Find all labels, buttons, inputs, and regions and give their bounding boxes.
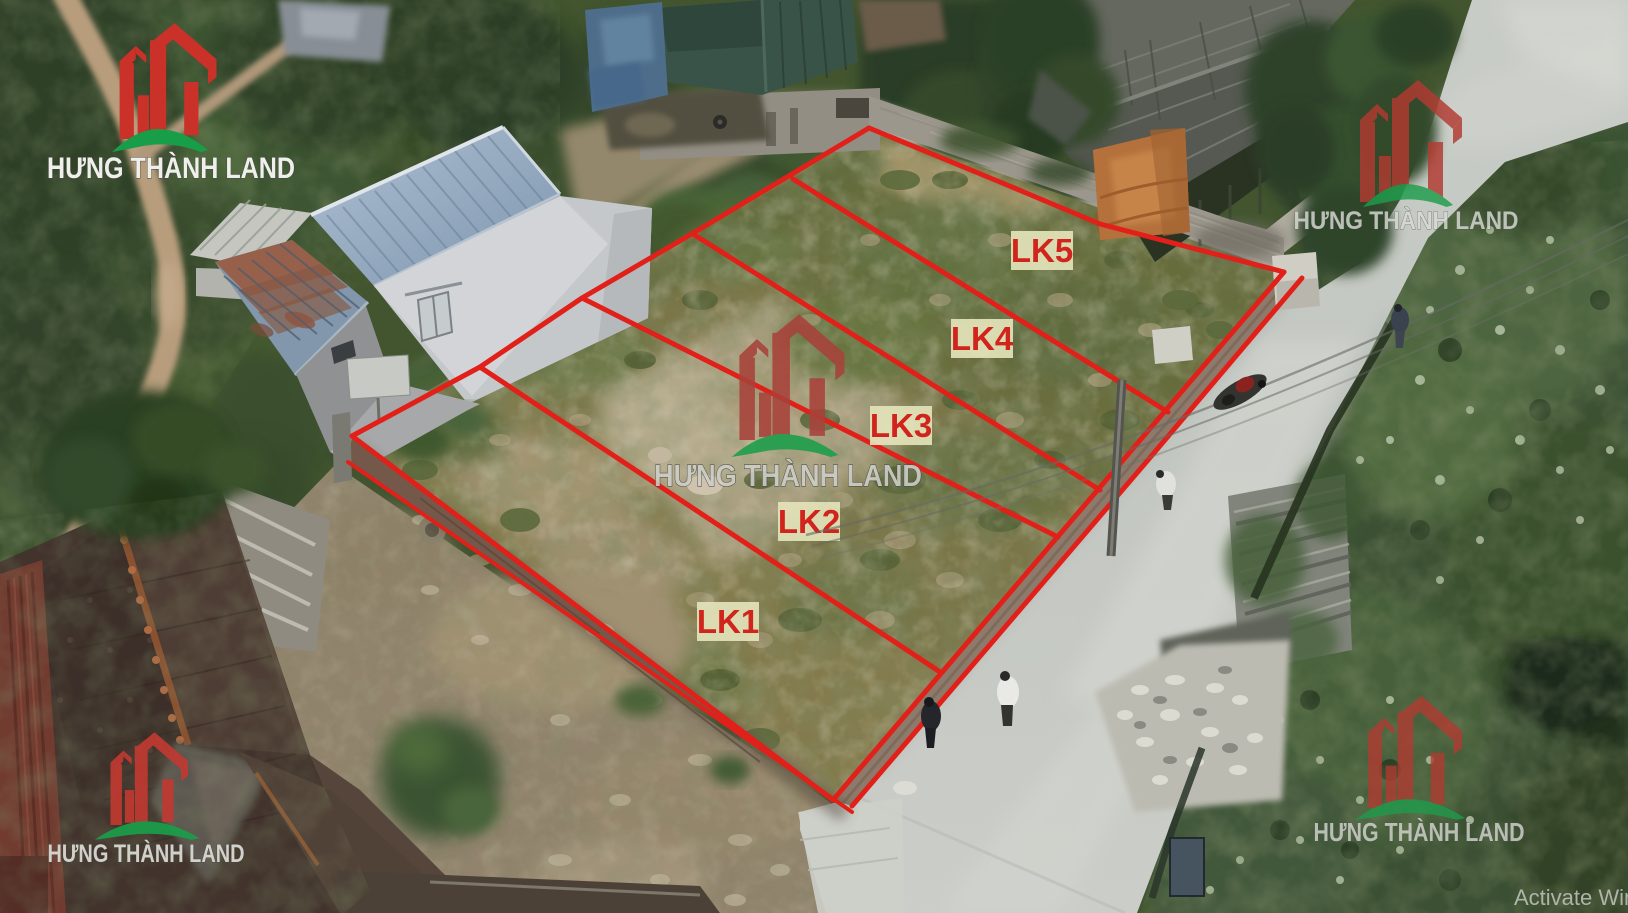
svg-text:HƯNG THÀNH LAND: HƯNG THÀNH LAND: [654, 458, 922, 493]
svg-text:HƯNG THÀNH LAND: HƯNG THÀNH LAND: [1314, 817, 1525, 847]
svg-text:Activate Win: Activate Win: [1514, 885, 1628, 910]
svg-text:HƯNG THÀNH LAND: HƯNG THÀNH LAND: [47, 151, 295, 185]
svg-text:LK1: LK1: [697, 603, 759, 640]
svg-text:LK5: LK5: [1011, 232, 1073, 269]
svg-text:LK3: LK3: [870, 407, 932, 444]
svg-text:LK4: LK4: [951, 320, 1014, 357]
svg-text:HƯNG THÀNH LAND: HƯNG THÀNH LAND: [1294, 206, 1519, 235]
svg-text:HƯNG THÀNH LAND: HƯNG THÀNH LAND: [48, 839, 245, 868]
